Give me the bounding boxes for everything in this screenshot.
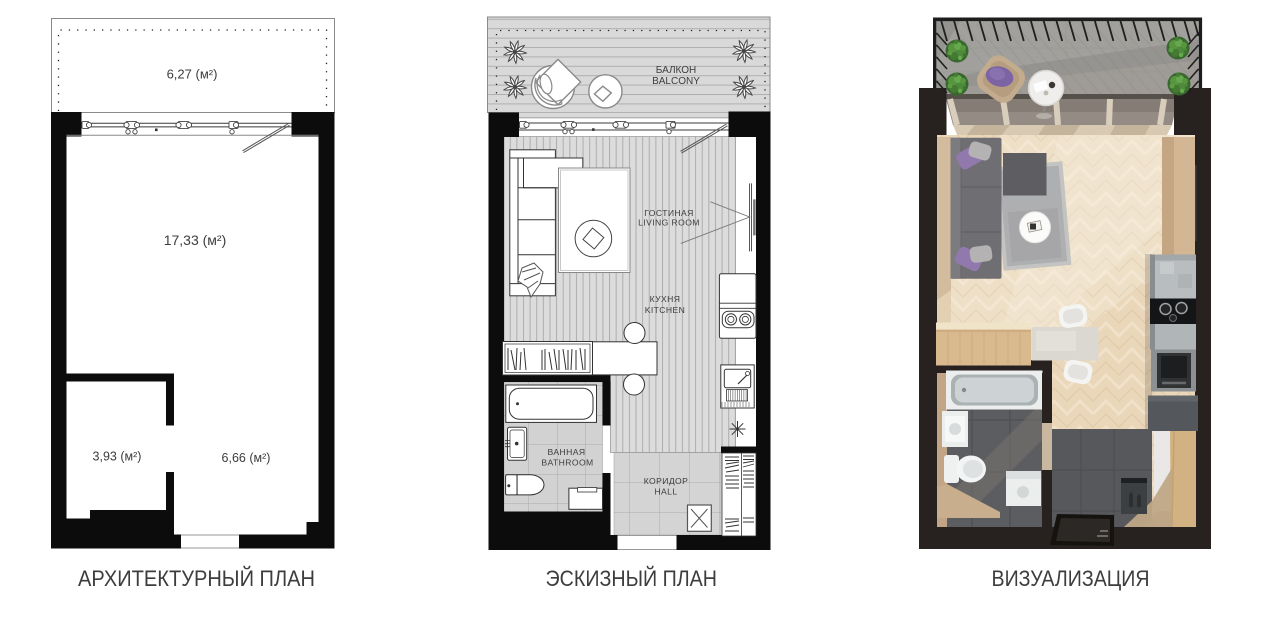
svg-text:KITCHEN: KITCHEN (645, 305, 686, 315)
svg-text:6,66 (м²): 6,66 (м²) (222, 451, 271, 465)
svg-text:ГОСТИНАЯ: ГОСТИНАЯ (644, 208, 694, 218)
svg-text:КУХНЯ: КУХНЯ (650, 294, 681, 304)
svg-text:17,33 (м²): 17,33 (м²) (164, 232, 227, 248)
svg-text:ВИЗУАЛИЗАЦИЯ: ВИЗУАЛИЗАЦИЯ (992, 566, 1150, 591)
svg-text:HALL: HALL (654, 487, 677, 497)
svg-text:3,93 (м²): 3,93 (м²) (93, 450, 142, 464)
svg-text:BATHROOM: BATHROOM (541, 458, 593, 468)
svg-text:БАЛКОН: БАЛКОН (656, 65, 697, 76)
svg-text:ВАННАЯ: ВАННАЯ (548, 447, 586, 457)
svg-text:6,27 (м²): 6,27 (м²) (167, 67, 218, 82)
svg-text:АРХИТЕКТУРНЫЙ ПЛАН: АРХИТЕКТУРНЫЙ ПЛАН (78, 566, 315, 591)
svg-text:ЭСКИЗНЫЙ ПЛАН: ЭСКИЗНЫЙ ПЛАН (546, 566, 718, 591)
svg-text:BALCONY: BALCONY (652, 76, 700, 87)
svg-text:LIVING ROOM: LIVING ROOM (638, 218, 700, 228)
svg-text:КОРИДОР: КОРИДОР (644, 476, 689, 486)
